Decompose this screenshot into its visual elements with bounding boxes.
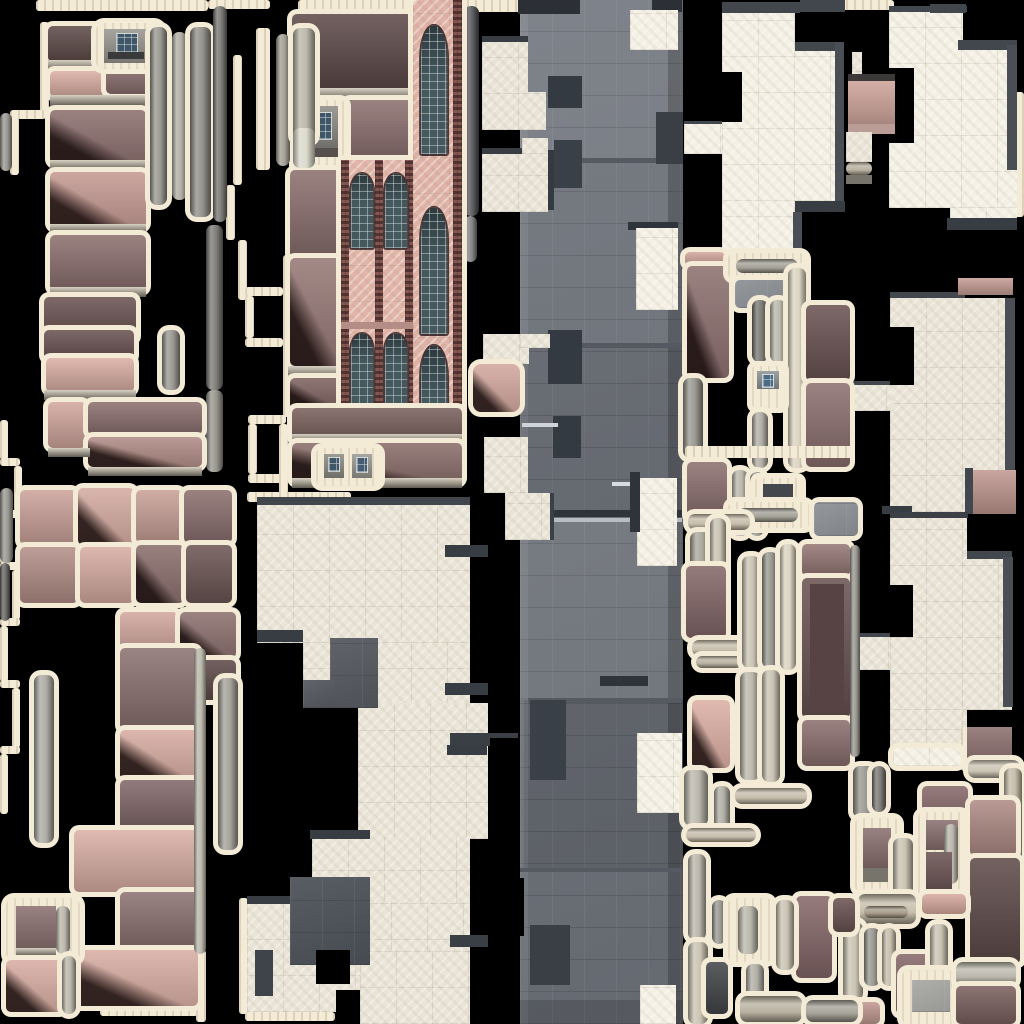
cluster-mid-pillar-2	[762, 552, 778, 668]
br-tan-bar-inner	[864, 906, 908, 918]
cluster-mauve-slab-l3	[686, 566, 726, 638]
cross-plaster-left-arm	[684, 124, 722, 154]
cluster-pink-slab	[692, 700, 730, 768]
concrete-shadow-notch-9	[530, 925, 570, 985]
cluster-gray-strip-r	[850, 545, 860, 757]
vent-pink-block	[473, 364, 520, 412]
wall-col-edge-strip	[194, 648, 206, 954]
cluster-pink-cap	[685, 252, 725, 266]
cross-plaster-left-trim2	[800, 0, 845, 12]
cluster-window-glass	[762, 374, 774, 388]
cross-left-notch-b	[722, 72, 742, 122]
cluster-mauve-slab-l2	[687, 462, 727, 520]
pink-slab-right	[972, 470, 1016, 514]
plaster-notch-black-3	[316, 950, 350, 984]
plaster-wing-4	[484, 437, 528, 493]
arch-window-r2	[419, 206, 449, 336]
concrete-seam-dark-4	[520, 868, 682, 872]
br-framed-box-1-wall	[863, 828, 891, 870]
cross-right-trim-c	[1007, 45, 1017, 170]
cluster-pillar-h1	[684, 770, 708, 826]
plaster-right-tab-4	[450, 935, 488, 947]
cornice-row-2	[50, 224, 146, 233]
roof-row-1	[50, 110, 146, 164]
door-frame-wall	[16, 906, 56, 954]
br-slab-1	[970, 800, 1016, 856]
ac-unit-window	[116, 33, 138, 53]
island-outline-zig-10	[0, 680, 20, 688]
rooftop-white-box-3	[637, 478, 677, 566]
concrete-bright-dash-2	[612, 482, 632, 486]
cornice-tl-2	[50, 95, 162, 106]
pillar-bottom-left	[34, 675, 54, 843]
wall-col-sec-3	[120, 780, 198, 830]
plaster-notch-black-2	[490, 878, 524, 936]
cluster-gray-block	[814, 502, 858, 536]
pillar-frag-left-2	[0, 488, 13, 563]
cross-right-trim-d	[947, 218, 1017, 230]
cluster-cream-column	[788, 268, 806, 468]
island-outline-zig-7	[12, 570, 20, 620]
island-outline-zig-12	[0, 746, 20, 754]
concrete-bright-dash-1	[522, 423, 558, 427]
roof-mid-5	[88, 437, 202, 467]
roof-bl-block	[6, 960, 64, 1012]
cornice-mid-2	[48, 448, 90, 457]
arch-window-a2	[383, 172, 409, 250]
plaster-right-tab-1	[445, 545, 488, 557]
bc-pillar-2	[688, 942, 708, 1024]
cream-pillar-bar	[256, 28, 270, 170]
cornice-mid-3	[88, 467, 202, 476]
cluster-mid-pillar-4	[740, 672, 760, 780]
roof-grid-b4	[186, 545, 232, 603]
roof-grid-a1	[20, 490, 76, 545]
plaster-roof-main-a	[257, 505, 470, 643]
bc-bar	[740, 996, 802, 1022]
door-frame-pillar	[56, 906, 70, 954]
bc-pillar-1	[688, 854, 706, 940]
wall-col-sec-4	[74, 830, 198, 892]
facade-band-cornice	[292, 434, 462, 443]
pillar-bottom-right	[218, 678, 238, 850]
cornice-row-3	[50, 287, 146, 297]
bc-pillar-3	[712, 900, 726, 944]
plaster-wing-1b	[482, 92, 546, 130]
island-outline-loop2-side	[248, 424, 257, 474]
pink-slab-top	[958, 278, 1013, 295]
roof-grid-b2	[80, 547, 134, 603]
ac-unit-slot	[108, 52, 144, 59]
island-outline-zig-1	[0, 420, 8, 460]
arch-window-r1	[419, 24, 449, 156]
plaster-wing-1	[482, 42, 528, 94]
zigzag-mid-arm	[850, 385, 892, 411]
island-outline-zig-13	[0, 754, 8, 814]
pillar-left-2	[172, 32, 187, 200]
facade-strip-cornice	[288, 366, 348, 378]
island-outline-right-b	[226, 185, 235, 240]
cross-plaster-left-trim	[722, 2, 800, 13]
island-outline-top-left	[36, 0, 208, 11]
facade-pillar-b-cap	[293, 128, 315, 168]
plaster-step-trim-1	[310, 830, 370, 839]
bc-frame-box-pillar	[738, 906, 758, 954]
plaster-wing-2b	[522, 138, 548, 154]
rooftop-white-box-3-trim	[630, 472, 640, 532]
facade-pillar-b	[293, 28, 315, 142]
pillar-mid-1	[162, 330, 180, 390]
br-plaster-chip	[893, 748, 961, 766]
plaster-dark-patch-2b	[255, 950, 273, 996]
facade-pilaster-2	[375, 160, 383, 410]
roof-mid-4	[88, 402, 202, 435]
wall-col-sec-2	[120, 730, 198, 780]
plaster-right-tab-2	[445, 683, 488, 695]
roof-row-3	[50, 235, 146, 291]
rooftop-white-box-5	[640, 985, 676, 1024]
cluster-mid-pillar-1	[742, 556, 760, 668]
cluster-pillar-c	[752, 412, 768, 468]
concrete-shadow-notch-5	[548, 330, 582, 384]
cluster-mauve-slab-r5	[802, 720, 850, 766]
wall-col-sec-6	[74, 950, 198, 1006]
br-framed-box-1-base	[863, 868, 891, 882]
pillar-left-4	[213, 6, 227, 222]
cluster-bar-low	[686, 828, 756, 842]
pink-slab-right-trim	[965, 468, 973, 514]
island-outline-loop1-side	[245, 296, 254, 338]
br-pink-band	[922, 894, 966, 914]
facade-pilaster-1	[341, 160, 349, 410]
concrete-shadow-notch-8	[530, 700, 566, 780]
rooftop-white-box-4	[637, 733, 682, 813]
pillar-left-4c	[206, 390, 223, 472]
pillar-frag-left-3	[0, 563, 10, 621]
facade-dark-pillar-b	[464, 216, 477, 262]
roof-row-2	[50, 172, 146, 228]
island-outline-top-right	[838, 0, 894, 10]
cluster-pillar-pair-b	[770, 300, 786, 362]
window-box-2-window-b	[356, 457, 368, 473]
cross-right-trim-a	[930, 4, 966, 13]
plaster-chip-a	[846, 132, 872, 162]
cluster-mauve-slab-l	[687, 266, 729, 378]
br-pillar-b	[872, 766, 886, 812]
roof-mid-1	[44, 330, 134, 360]
cluster-bar-bottom	[735, 788, 807, 804]
br-pillar-e	[864, 928, 880, 986]
roof-grid-b1	[20, 547, 78, 603]
door-frame-sill	[16, 948, 56, 956]
plaster-left-tab-trim	[257, 630, 303, 642]
bc-pillar-5	[776, 900, 794, 970]
tan-chip	[846, 162, 872, 175]
zigzag-mid-right-trim	[1005, 298, 1015, 470]
facade-strip-a	[290, 170, 346, 258]
cornice-row-1	[50, 160, 146, 170]
cross-left-notch-a	[795, 13, 843, 42]
cluster-tan-bar-3	[696, 656, 742, 668]
bc-mauve-slab	[796, 896, 832, 978]
plaster-wing-4b	[505, 493, 550, 540]
br-slab-2	[970, 858, 1020, 964]
br-pillar-d	[843, 922, 863, 1000]
concrete-shadow-notch-4	[656, 112, 683, 164]
facade-ledge	[341, 322, 413, 329]
facade-pillar-a	[276, 34, 290, 166]
island-outline-zig-11	[12, 688, 20, 748]
br-cap-bar	[956, 962, 1016, 986]
rooftop-pink-block	[848, 78, 895, 128]
plaster-wing-3b	[520, 334, 550, 348]
island-outline-right-a	[233, 55, 242, 185]
cluster-mid-pillar-5	[762, 670, 780, 782]
concrete-shadow-notch-3	[554, 140, 582, 188]
cluster-mauve-slab-r4-inner	[810, 584, 844, 712]
cluster-mid-pillar-3	[780, 544, 796, 670]
cross-left-bot-trim2	[793, 212, 802, 254]
island-outline-plaster-bottom	[245, 1012, 335, 1021]
arch-window-b1	[349, 332, 375, 406]
cross-left-bot-trim	[795, 201, 845, 212]
zigzag-low-right-trim	[1003, 557, 1013, 707]
pillar-frag-left	[0, 113, 12, 171]
pillar-bl	[62, 956, 76, 1014]
rooftop-pink-block-trim	[848, 74, 895, 81]
zigzag-low-notch	[890, 585, 913, 637]
island-outline-zig-9	[0, 626, 8, 682]
wall-col-sec-5	[120, 892, 198, 950]
roof-mid-2	[46, 358, 134, 392]
zigzag-mid-notch	[890, 327, 914, 385]
cluster-cream-bar	[685, 446, 853, 458]
br-pillar-f	[882, 928, 896, 986]
gray-chip	[846, 175, 872, 184]
plaster-dark-patch-1b	[303, 680, 335, 708]
br-framed-box-2-dark	[926, 852, 952, 896]
cluster-mauve-slab-r1	[806, 305, 850, 381]
island-outline-loop1-top	[245, 287, 283, 296]
facade-mauve-row2	[345, 100, 413, 162]
bc-chip	[833, 898, 855, 932]
pillar-left-3	[190, 27, 211, 217]
island-outline-loop1-bot	[245, 338, 283, 347]
roof-grid-a2	[78, 488, 134, 545]
rooftop-white-box-4-trim	[600, 676, 648, 686]
window-box-2-window-a	[328, 457, 340, 472]
plaster-top-tab	[447, 745, 487, 755]
arch-window-b2	[383, 332, 409, 406]
roof-grid-b3	[136, 545, 184, 603]
roof-block-tl-pink	[50, 71, 108, 97]
cluster-dark-unit-fill	[763, 484, 793, 498]
plaster-notch-black-4	[336, 990, 360, 1024]
cluster-tan-bar-2	[692, 640, 746, 656]
texture-atlas-canvas: city-building-texture-atlas	[0, 0, 1024, 1024]
plaster-roof-main-c	[358, 703, 488, 839]
pillar-left-4b	[206, 225, 223, 390]
island-outline-bottom-pink	[100, 1006, 198, 1016]
plaster-dark-patch-1	[330, 638, 378, 708]
island-outline-loop2-top	[248, 415, 286, 424]
cross-plaster-left-ext	[722, 201, 798, 253]
plaster-wing-2	[482, 154, 548, 212]
cluster-mauve-slab-r3	[802, 544, 850, 576]
island-outline-loop2-right	[279, 424, 288, 494]
br-framed-box-3-fill	[912, 980, 950, 1012]
concrete-shadow-notch-1	[548, 76, 582, 108]
roof-mid-3	[48, 402, 86, 448]
pillar-left-1	[150, 27, 167, 205]
bc-bar-2	[806, 1000, 858, 1022]
cornice-mid-1	[44, 390, 136, 400]
facade-strip-c	[290, 378, 346, 410]
plaster-notch-black-1	[490, 738, 518, 810]
cross-left-right-trim	[835, 42, 844, 202]
cluster-pillar-pair-a	[752, 300, 768, 362]
facade-dark-pillar	[464, 6, 479, 216]
plaster-roof-main-f	[360, 950, 470, 1024]
bc-dark-block	[706, 962, 728, 1014]
rooftop-white-box-2	[636, 228, 678, 310]
concrete-top-shadow-a	[518, 0, 580, 14]
facade-strip-b	[290, 258, 346, 366]
arch-window-a1	[349, 172, 375, 250]
rooftop-white-box-1	[630, 10, 678, 50]
island-outline-zig-2	[0, 458, 20, 466]
roof-grid-a3	[136, 490, 182, 543]
wall-col-sec-1	[120, 648, 198, 730]
br-low-slab	[956, 986, 1016, 1024]
roof-grid-a4	[184, 490, 232, 543]
